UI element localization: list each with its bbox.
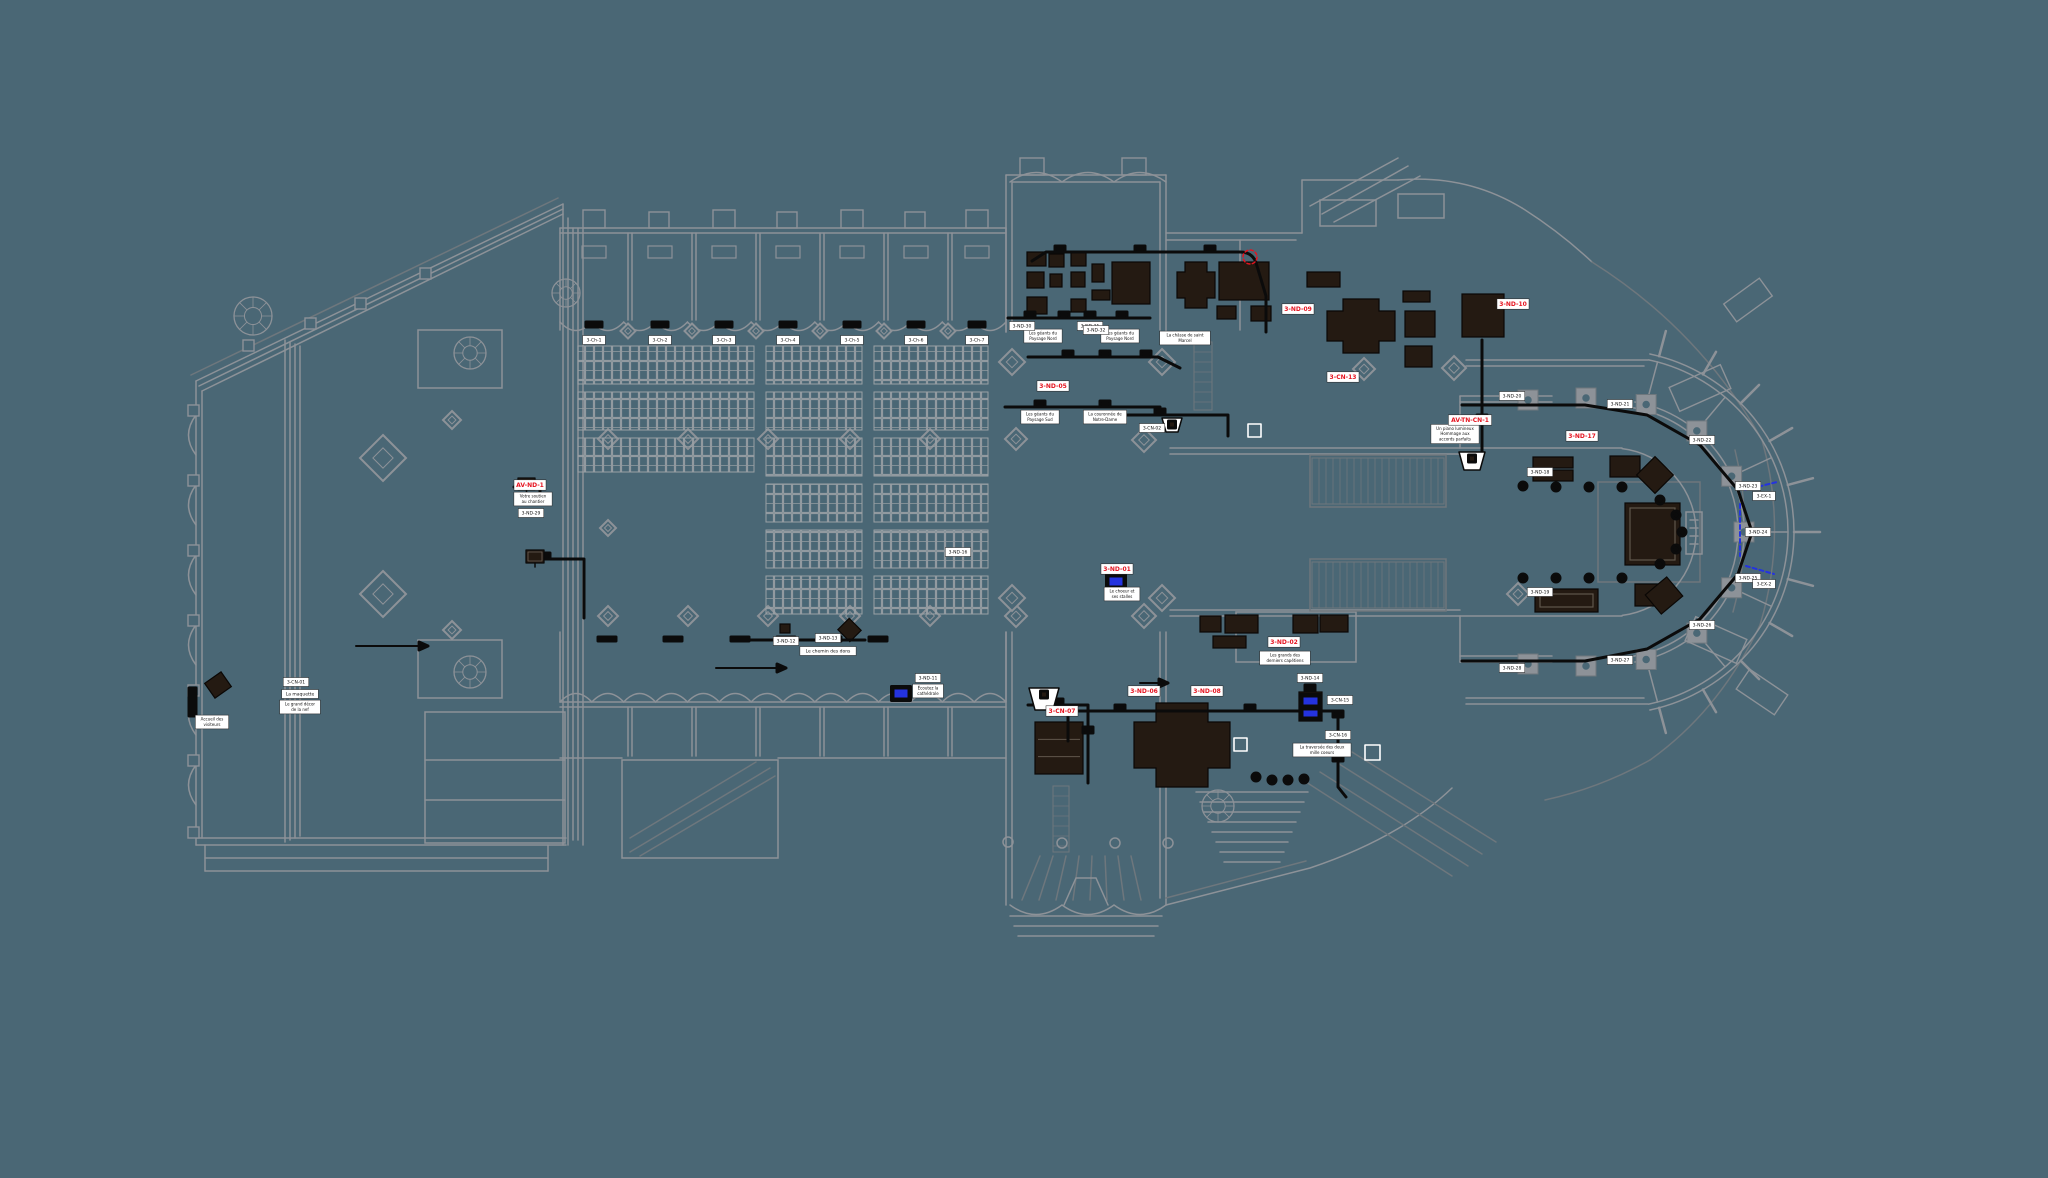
walls-layer [188, 158, 1820, 936]
equipment-label-red-text: 3-CN-07 [1049, 708, 1076, 715]
cable-connector-led [1038, 403, 1042, 405]
wall-line [1522, 208, 1592, 262]
caption-label-text: La maquette [286, 691, 315, 697]
equipment-label-red-text: 3-ND-05 [1039, 383, 1067, 390]
column-dot-gray [1163, 838, 1173, 848]
column-dot [1585, 483, 1593, 491]
wall-line [189, 765, 197, 805]
wall-line [418, 640, 502, 698]
furniture-block [1092, 290, 1110, 300]
wall-line [189, 625, 197, 665]
cable-connector-led [1056, 701, 1060, 703]
cable-connector-led [1062, 314, 1066, 316]
cable-connector-led [1158, 411, 1162, 413]
pew-block [766, 438, 862, 476]
wall-line [1166, 861, 1306, 898]
cable-connector-led [1308, 687, 1312, 689]
direction-arrow-head [419, 642, 428, 650]
column-dot-gray [1057, 838, 1067, 848]
caption-label-text: 3-CN-15 [1331, 697, 1349, 703]
column-dot [1519, 482, 1527, 490]
furniture-block [780, 624, 790, 633]
equipment-label-red-text: 3-ND-02 [1270, 639, 1298, 646]
chapel-tick [908, 322, 924, 327]
caption-label-text: 3-ND-32 [1087, 327, 1106, 333]
apse-buttress [1788, 579, 1813, 586]
cable-connector-led [1103, 403, 1107, 405]
caption-label-text: Hommage aux [1440, 431, 1470, 436]
pillar-diamond [999, 585, 1025, 611]
furniture-block [1092, 264, 1104, 282]
column-dot [1672, 511, 1680, 519]
column-dot [1585, 574, 1593, 582]
column-dot [1300, 775, 1308, 783]
caption-label-text: Accueil des [201, 717, 224, 722]
chapel-tick [716, 322, 732, 327]
column-dot [1252, 773, 1260, 781]
caption-label-text: Un piano lumineux [1436, 426, 1474, 431]
furniture-block [1403, 291, 1430, 302]
wall-line [1131, 856, 1141, 900]
lectern-icon-core [1169, 421, 1176, 428]
chapel-tick [844, 322, 860, 327]
furniture-block [1071, 252, 1086, 266]
wall-node [188, 475, 199, 486]
spiral-step [259, 303, 266, 310]
chapel-tick [731, 637, 749, 641]
direction-arrow-head [777, 664, 786, 672]
pillar-core [1642, 400, 1651, 409]
pillar-diamond [1132, 604, 1156, 628]
pew-block [766, 392, 862, 430]
annex-outline [1724, 278, 1773, 322]
caption-label-text: 3-ND-20 [1503, 393, 1522, 399]
wall-line [1545, 760, 1650, 800]
column-dot [1678, 528, 1686, 536]
caption-label-text: 3-Ch-7 [970, 337, 985, 343]
caption-label-text: 3-ND-11 [919, 675, 938, 681]
pillar-diamond [1005, 428, 1027, 450]
caption-label-text: 3-Ch-6 [909, 337, 924, 343]
wall-node [355, 298, 366, 309]
screen-blue-icon [1302, 696, 1319, 706]
pillar-diamond [600, 520, 616, 536]
chapel-tick [189, 688, 196, 716]
cable-connector-led [1138, 248, 1142, 250]
equipment-label-red-text: 3-ND-10 [1499, 301, 1527, 308]
spiral-step [459, 661, 465, 667]
wall-line [640, 776, 775, 856]
wall-line [418, 330, 502, 388]
wall-line [1056, 856, 1066, 900]
furniture-block [1307, 272, 1340, 287]
column-dot [1618, 483, 1626, 491]
equipment-label-red-text: 3-ND-01 [1103, 566, 1131, 573]
cable-connector-led [1248, 707, 1252, 709]
roof-bump [649, 212, 669, 228]
furniture-block [1049, 254, 1064, 267]
column-dot [1656, 496, 1664, 504]
spiral-step [240, 303, 247, 310]
pillar-diamond [360, 435, 406, 481]
wall-node [305, 318, 316, 329]
cable-connector-led [1208, 248, 1212, 250]
cable-connector-led [1336, 757, 1340, 759]
cable-connector-led [1144, 353, 1148, 355]
pillar-diamond [941, 324, 956, 339]
caption-label-text: derniers capétiens [1266, 658, 1303, 663]
caption-label-text: 3-Ch-5 [845, 337, 860, 343]
caption-label-text: 3-ND-18 [1531, 469, 1550, 475]
pillar-diamond [360, 571, 406, 617]
furniture-block [1071, 299, 1086, 312]
caption-label-text: 3-ND-14 [1301, 675, 1320, 681]
wall-line [189, 415, 197, 455]
chapel-tick [586, 322, 602, 327]
cable-connector-led [1336, 713, 1340, 715]
column-dot [1618, 574, 1626, 582]
wall-node [188, 545, 199, 556]
lectern-icon-core [1469, 455, 1476, 462]
pillar-diamond [999, 349, 1025, 375]
caption-label-text: 3-CN-01 [287, 679, 305, 685]
caption-label-text: au chantier [522, 499, 545, 504]
equipment-label-red-text: AV-ND-1 [516, 482, 544, 489]
spiral-step [1207, 795, 1213, 801]
spiral-step [459, 342, 465, 348]
pew-block [766, 484, 862, 522]
equipment-label-red-text: 3-ND-08 [1193, 688, 1221, 695]
pillar-diamond [443, 621, 461, 639]
furniture-block [1610, 456, 1640, 477]
pillar-diamond [621, 324, 636, 339]
apse-buttress [1741, 385, 1759, 403]
furniture-block [1637, 457, 1674, 494]
chapel-altar [904, 246, 928, 258]
caption-label-text: 3-ND-13 [819, 635, 838, 641]
caption-label-text: Votre soutien [520, 494, 547, 499]
pillar-diamond [598, 606, 618, 626]
equipment-label-red-text: 3-ND-06 [1130, 688, 1158, 695]
caption-label-text: Notre-Dame [1093, 417, 1118, 422]
caption-label-text: Le chemin des dons [806, 648, 851, 654]
spiral-step [459, 358, 465, 364]
wall-line [1039, 856, 1053, 900]
column-dot [1284, 776, 1292, 784]
pew-block [874, 576, 988, 614]
annex-outline [1736, 669, 1788, 715]
cable-connector-led [1066, 353, 1070, 355]
cable-connector-led [1058, 248, 1062, 250]
apse-buttress [1770, 623, 1793, 636]
chapel-altar [712, 246, 736, 258]
wall-line [196, 204, 563, 381]
spiral-step [475, 661, 481, 667]
furniture-block [1225, 615, 1258, 633]
column-dot [1268, 776, 1276, 784]
pillar-diamond [443, 411, 461, 429]
furniture-block [1533, 457, 1573, 468]
chapel-tick [598, 637, 616, 641]
caption-label-text: 3-ND-30 [1013, 323, 1032, 329]
caption-label-text: La traversée des deux [1300, 745, 1345, 750]
screen-blue-icon [1108, 576, 1124, 587]
cable-connector-led [1118, 707, 1122, 709]
pillar-core [1692, 426, 1701, 435]
caption-label-text: Les géants du [1029, 331, 1057, 336]
caption-label-text: 3-ND-12 [777, 638, 796, 644]
pew-block [874, 484, 988, 522]
wall-line [202, 214, 563, 391]
caption-label-text: Marcel [1178, 338, 1191, 343]
furniture-block [1213, 636, 1246, 648]
annex-outline [1669, 365, 1731, 412]
chapel-altar [648, 246, 672, 258]
wall-line [1352, 752, 1496, 842]
floor-marker [1234, 738, 1247, 751]
caption-label-text: mille coeurs [1310, 750, 1334, 755]
pillar-diamond [877, 324, 892, 339]
chapel-altar [582, 246, 606, 258]
roof-bump [841, 210, 863, 228]
cathedral-floor-plan: Les géants duPaysage NordLes géants duPa… [0, 0, 2048, 1178]
pew-block [874, 346, 988, 384]
wall-line [1064, 878, 1108, 905]
caption-label-text: ses stalles [1112, 594, 1133, 599]
spiral-step [475, 342, 481, 348]
wall-node [188, 755, 199, 766]
caption-label-text: 3-ND-22 [1693, 437, 1712, 443]
equipment-label-red-text: 3-CN-13 [1330, 374, 1357, 381]
roof-bump [583, 210, 605, 228]
furniture-block [1035, 722, 1083, 774]
furniture-block [1217, 306, 1236, 319]
wall-line [1310, 559, 1446, 611]
wall-line [1022, 856, 1040, 900]
pillar-core [1642, 655, 1651, 664]
exit-path-blue [1746, 566, 1774, 574]
caption-label-text: Le choeur et [1109, 589, 1134, 594]
wall-line [630, 768, 770, 852]
apse-buttress [1770, 428, 1793, 441]
column-dot [1552, 483, 1560, 491]
caption-label-text: 3-Ch-3 [717, 337, 732, 343]
wall-line [1592, 262, 1762, 440]
equipment-label-red-text: 3-ND-09 [1284, 306, 1312, 313]
caption-label-text: 3-Ch-1 [587, 337, 602, 343]
spiral-step [259, 322, 266, 329]
wall-node [188, 405, 199, 416]
caption-label-text: 3-EX-2 [1757, 581, 1772, 587]
chapel-altar [965, 246, 989, 258]
pew-block [874, 438, 988, 476]
furniture-block [1071, 272, 1085, 287]
furniture-block [1405, 346, 1432, 367]
floor-marker [1248, 424, 1261, 437]
chapel-altar [776, 246, 800, 258]
lectern-icon-core [1041, 691, 1048, 698]
caption-label-text: 3-ND-29 [522, 510, 541, 516]
caption-label-text: 3-Ch-4 [781, 337, 796, 343]
caption-label-text: 3-ND-21 [1611, 401, 1630, 407]
wall-node [420, 268, 431, 279]
wall-node [188, 827, 199, 838]
wall-line [1310, 158, 1398, 206]
pillar-core [1582, 394, 1591, 403]
spiral-step [475, 677, 481, 683]
caption-label-text: Les grands des [1270, 653, 1300, 658]
pew-block [874, 392, 988, 430]
caption-label-text: 3-ND-26 [1693, 622, 1712, 628]
caption-label-text: 3-CN-02 [1143, 425, 1161, 431]
caption-label-text: cathédrale [917, 691, 939, 696]
caption-label-text: 3-ND-28 [1503, 665, 1522, 671]
chapel-tick [664, 637, 682, 641]
caption-label-text: accords parfaits [1439, 437, 1471, 442]
furniture-block [1027, 272, 1044, 288]
furniture-block [1320, 615, 1348, 632]
caption-label-text: 3-ND-23 [1739, 483, 1758, 489]
furniture-block [1200, 616, 1221, 632]
screen-blue-icon [893, 688, 909, 699]
caption-label-text: 3-ND-16 [949, 549, 968, 555]
pillar-core [1692, 629, 1701, 638]
roof-bump [713, 210, 735, 228]
spiral-step [1223, 795, 1229, 801]
caption-label-text: Les géants du [1106, 331, 1134, 336]
caption-label-text: Paysage Sud [1027, 417, 1053, 422]
pews-layer [578, 346, 988, 614]
wall-line [1105, 856, 1107, 900]
pillar-diamond [685, 324, 700, 339]
platform-cross [1177, 262, 1215, 308]
furniture-block [1405, 311, 1435, 337]
furniture-block [1050, 274, 1062, 287]
chapel-altar [840, 246, 864, 258]
platform-cross [1134, 703, 1230, 787]
pillar-diamond [678, 606, 698, 626]
caption-label-text: La châsse de saint [1166, 333, 1203, 338]
caption-label-text: visiteurs [204, 722, 221, 727]
wall-line [1336, 762, 1482, 854]
pew-block [578, 392, 754, 430]
furniture-block [1112, 262, 1150, 304]
caption-label-text: 3-ND-24 [1749, 529, 1768, 535]
column-dot [1672, 545, 1680, 553]
apse-buttress [1788, 478, 1813, 485]
wall-line [425, 712, 565, 843]
roof-bump [905, 212, 925, 228]
apse-buttress [1703, 690, 1716, 713]
pew-block [766, 530, 862, 568]
spiral-step [475, 358, 481, 364]
caption-label-text: de la nef [291, 707, 309, 712]
caption-label-text: 3-Ch-2 [653, 337, 668, 343]
chapel-tick [652, 322, 668, 327]
caption-label-text: Paysage Nord [1029, 336, 1057, 341]
apse-buttress [1659, 331, 1666, 356]
chapel-arcade [1010, 905, 1166, 915]
caption-label-text: Le grand décor [285, 702, 316, 707]
column-dot-gray [1110, 838, 1120, 848]
wall-line [1166, 788, 1452, 905]
cable-connector-led [1028, 314, 1032, 316]
chapel-arcade [1010, 173, 1166, 183]
pew-block [766, 576, 862, 614]
wall-line [1310, 455, 1446, 507]
floor-marker [1365, 745, 1380, 760]
wall-line [1118, 856, 1124, 900]
pillar-diamond [1507, 583, 1529, 605]
spiral-step [459, 677, 465, 683]
furniture-block [1251, 306, 1271, 321]
wall-node [188, 615, 199, 626]
roof-bump [966, 210, 988, 228]
caption-label-text: Les géants du [1026, 412, 1054, 417]
equipment-label-red-text: 3-ND-17 [1568, 433, 1596, 440]
wall-line [630, 762, 756, 838]
column-dot [1519, 574, 1527, 582]
spiral-step [240, 322, 247, 329]
caption-label-text: 3-CN-16 [1329, 732, 1347, 738]
caption-label-text: Paysage Nord [1106, 336, 1134, 341]
chapel-tick [869, 637, 887, 641]
chapel-tick [780, 322, 796, 327]
pillar-diamond [813, 324, 828, 339]
cable-connector-led [1120, 314, 1124, 316]
column-dot [1552, 574, 1560, 582]
pew-block [578, 346, 754, 384]
wall-line [189, 485, 197, 525]
caption-label-text: 3-ND-19 [1531, 589, 1550, 595]
cable-connector-led [1103, 353, 1107, 355]
cable-connector-led [1086, 729, 1090, 731]
pillar-diamond [749, 324, 764, 339]
platform-cross [1327, 299, 1395, 353]
furniture-block [205, 672, 232, 698]
wall-line [1320, 772, 1468, 866]
equipment-label-red-text: AV-TN-CN-1 [1451, 417, 1489, 424]
caption-label-text: 3-ND-27 [1611, 657, 1630, 663]
screen-blue-icon [1302, 709, 1319, 718]
pillar-diamond [1442, 356, 1466, 380]
pillar-core [1582, 662, 1591, 671]
wall-line [189, 555, 197, 595]
wall-line [1398, 194, 1444, 218]
plan-viewport: Les géants duPaysage NordLes géants duPa… [0, 0, 2048, 1178]
column-dot [1656, 560, 1664, 568]
wall-node [243, 340, 254, 351]
pew-block [578, 438, 754, 472]
caption-label-text: La couronnée de [1088, 412, 1122, 417]
roof-bump [777, 212, 797, 228]
pillar-diamond [1149, 585, 1175, 611]
chapel-tick [969, 322, 985, 327]
cable-connector-led [1088, 314, 1092, 316]
caption-label-text: Écoutez la [918, 686, 939, 691]
caption-label-text: 3-EX-1 [1757, 493, 1772, 499]
pew-block [766, 346, 862, 384]
apse-buttress [1659, 708, 1666, 733]
furniture-block [1293, 615, 1318, 633]
